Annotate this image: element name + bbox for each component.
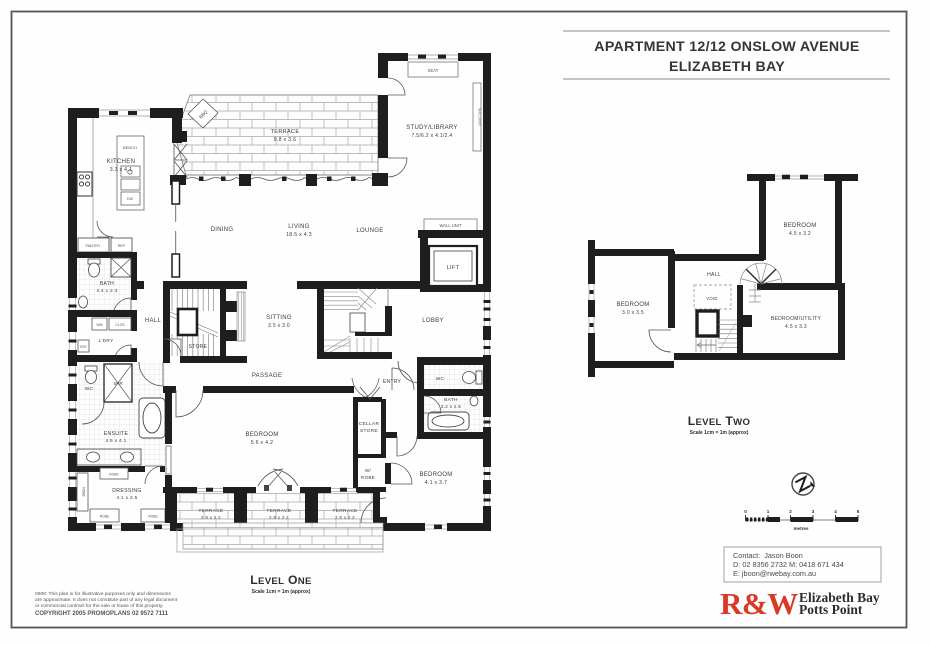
svg-text:4.1 x 2.5: 4.1 x 2.5 [116,495,137,501]
svg-text:HALL: HALL [707,272,721,278]
svg-text:4.5 x 3.2: 4.5 x 3.2 [789,231,811,237]
svg-text:or commercial contract for the: or commercial contract for the sale or l… [35,603,163,609]
svg-text:COPYRIGHT 2005 PROMOPLANS: COPYRIGHT 2005 PROMOPLANS 02 9572 7111 [35,611,169,617]
svg-text:APARTMENT 12/12 ONSLOW AVENUE: APARTMENT 12/12 ONSLOW AVENUE [594,39,859,55]
svg-text:D: 02 8356 2732 M: 0418 671 4: D: 02 8356 2732 M: 0418 671 434 [733,560,844,569]
svg-text:DINING: DINING [211,227,234,233]
svg-text:4.5 x 4.1: 4.5 x 4.1 [105,438,126,444]
svg-text:5: 5 [857,509,860,514]
svg-text:WALL UNIT: WALL UNIT [439,223,461,228]
svg-text:BEDROOM: BEDROOM [419,472,452,478]
svg-text:CELLAR: CELLAR [359,421,380,427]
svg-text:SITTING: SITTING [266,315,292,321]
svg-text:9.8 x 3.6: 9.8 x 3.6 [274,137,297,143]
svg-text:0908: This plan is for illustr: 0908: This plan is for illustrative purp… [35,591,171,597]
svg-text:LEVEL ONE: LEVEL ONE [250,573,312,587]
svg-text:2.9 x 2.2: 2.9 x 2.2 [201,515,221,520]
svg-text:ELIZABETH BAY: ELIZABETH BAY [669,59,785,75]
svg-text:DW: DW [127,197,134,201]
svg-text:ROBE: ROBE [82,487,86,497]
svg-text:DRESSING: DRESSING [112,488,142,494]
svg-text:3.5 x 3.0: 3.5 x 3.0 [268,323,290,329]
svg-text:Contact: Jason Boon: Contact: Jason Boon [733,551,803,560]
svg-text:BATH: BATH [100,281,114,287]
svg-text:STORE: STORE [189,344,208,350]
svg-text:Scale 1cm = 1m (approx): Scale 1cm = 1m (approx) [690,430,749,436]
svg-text:STUDY/LIBRARY: STUDY/LIBRARY [406,125,457,131]
svg-text:ROBE: ROBE [109,473,119,477]
svg-text:BENCH: BENCH [123,145,137,150]
svg-text:4.1 x 3.7: 4.1 x 3.7 [425,480,448,486]
svg-text:LOUNGE: LOUNGE [356,228,383,234]
svg-text:PASSAGE: PASSAGE [252,373,282,379]
svg-text:2.9 x 2.2: 2.9 x 2.2 [335,515,355,520]
svg-text:BEDROOM: BEDROOM [245,432,278,438]
svg-text:R&W: R&W [720,586,798,621]
svg-text:BEDROOM: BEDROOM [616,302,649,308]
svg-text:TERRACE: TERRACE [266,508,291,514]
svg-text:ROBE: ROBE [148,515,158,519]
svg-text:metres: metres [793,526,809,531]
svg-text:2.4 x 2.3: 2.4 x 2.3 [96,288,117,294]
svg-text:2: 2 [789,509,792,514]
svg-text:7.5/6.2 x 4.1/2.4: 7.5/6.2 x 4.1/2.4 [412,133,453,139]
svg-text:LOBBY: LOBBY [422,318,444,324]
svg-text:WM: WM [96,323,102,327]
svg-text:are approximate. It does not c: are approximate. It does not constitute … [35,597,178,603]
svg-text:ROBE: ROBE [100,515,110,519]
svg-text:ENSUITE: ENSUITE [104,431,129,437]
svg-text:VOID: VOID [706,296,717,301]
svg-text:BEDROOM: BEDROOM [783,223,816,229]
svg-text:REF: REF [118,244,126,248]
svg-text:1: 1 [767,509,770,514]
svg-text:KITCHEN: KITCHEN [107,159,135,165]
svg-text:W/: W/ [365,468,372,473]
svg-text:LEVEL TWO: LEVEL TWO [688,414,751,428]
svg-text:TERRACE: TERRACE [332,508,357,514]
svg-text:DRY: DRY [80,345,88,349]
svg-text:Potts Point: Potts Point [799,602,863,617]
svg-text:L'DRY: L'DRY [98,338,114,344]
svg-text:HALL: HALL [145,318,162,324]
svg-text:3.2 x 2.5: 3.2 x 2.5 [441,404,461,409]
svg-text:SEAT: SEAT [428,68,439,73]
svg-text:5.6 x 4.2: 5.6 x 4.2 [251,440,274,446]
svg-text:BATH: BATH [444,397,458,403]
svg-text:WC: WC [85,386,94,392]
svg-text:3.3 x 4.1: 3.3 x 4.1 [110,167,133,173]
svg-text:TERRACE: TERRACE [198,508,223,514]
svg-text:2.9 x 2.2: 2.9 x 2.2 [269,515,289,520]
svg-text:LIVING: LIVING [288,224,310,230]
svg-text:WC: WC [436,376,445,382]
svg-text:BEDROOM/UTILITY: BEDROOM/UTILITY [771,316,822,322]
svg-text:SHR: SHR [113,381,122,386]
svg-text:4.5 x 3.3: 4.5 x 3.3 [785,324,807,330]
svg-text:PANTRY: PANTRY [85,244,101,248]
svg-text:3.0 x 3.5: 3.0 x 3.5 [622,310,644,316]
svg-text:0: 0 [744,509,747,514]
svg-text:18.5 x 4.3: 18.5 x 4.3 [286,232,312,238]
svg-text:Scale 1cm = 1m (approx): Scale 1cm = 1m (approx) [252,589,311,595]
svg-text:TERRACE: TERRACE [271,129,300,135]
svg-text:CLOS: CLOS [115,323,125,327]
svg-text:3: 3 [812,509,815,514]
svg-text:LIFT: LIFT [447,265,460,271]
svg-text:STORE: STORE [360,428,378,434]
svg-text:4: 4 [834,509,837,514]
svg-text:ROBE: ROBE [361,475,375,480]
svg-text:SH/L UNIT: SH/L UNIT [478,108,482,127]
svg-text:E: jboon@rwebay.com.au: E: jboon@rwebay.com.au [733,569,816,578]
